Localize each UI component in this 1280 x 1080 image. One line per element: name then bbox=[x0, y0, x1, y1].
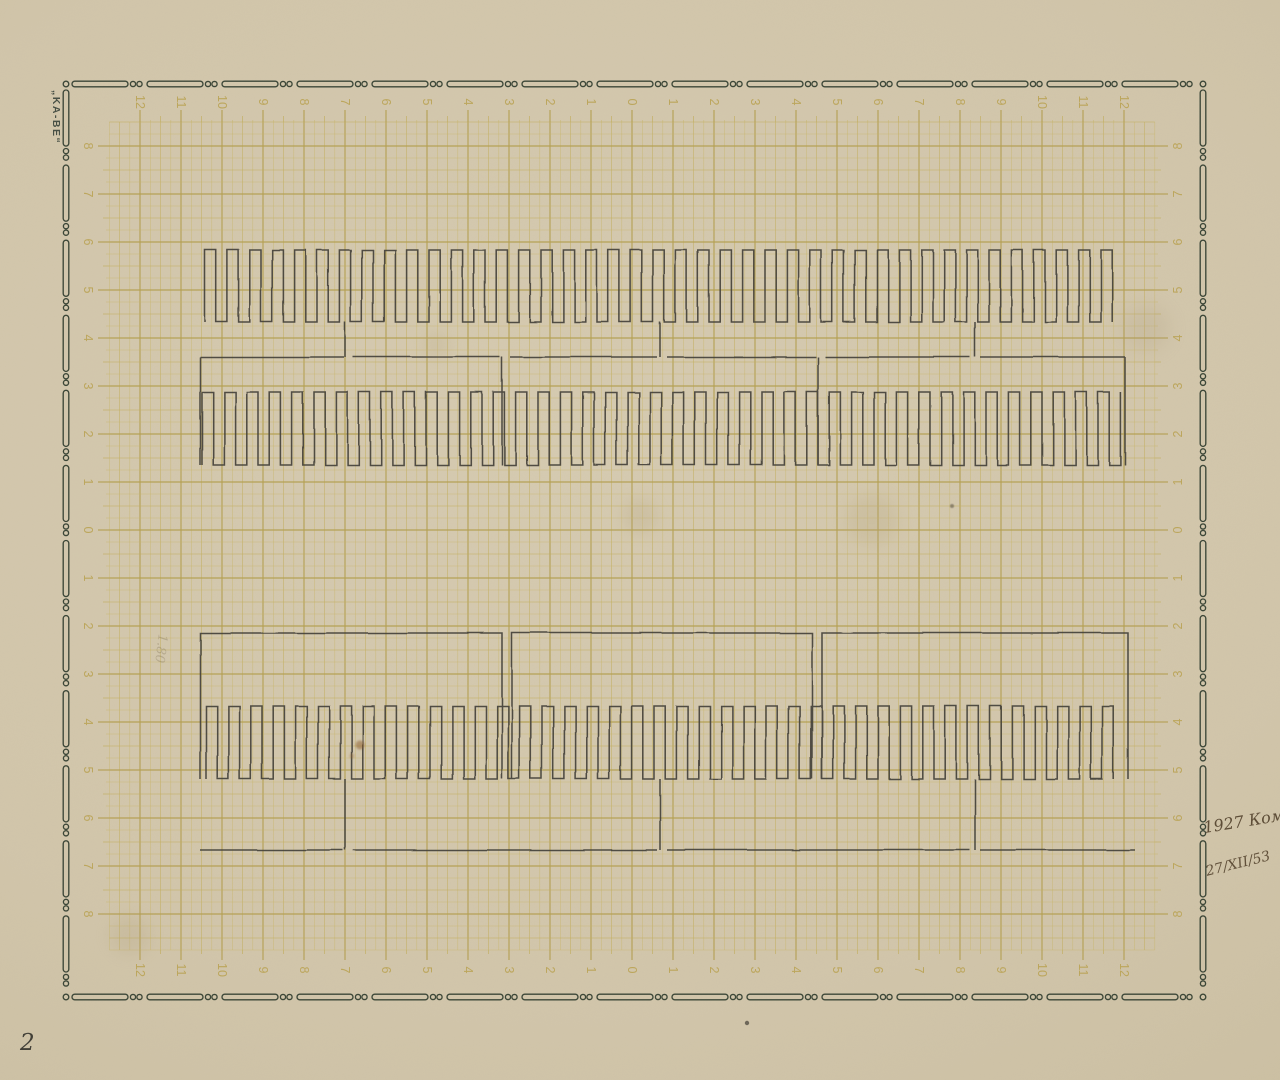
sheet-drawing: 1212111110109988776655443322110011223344… bbox=[0, 0, 1280, 1080]
page-number: 2 bbox=[20, 1030, 35, 1056]
graph-paper-sheet: 1212111110109988776655443322110011223344… bbox=[0, 0, 1280, 1080]
brand-label: „KA-BE“ bbox=[50, 90, 62, 144]
